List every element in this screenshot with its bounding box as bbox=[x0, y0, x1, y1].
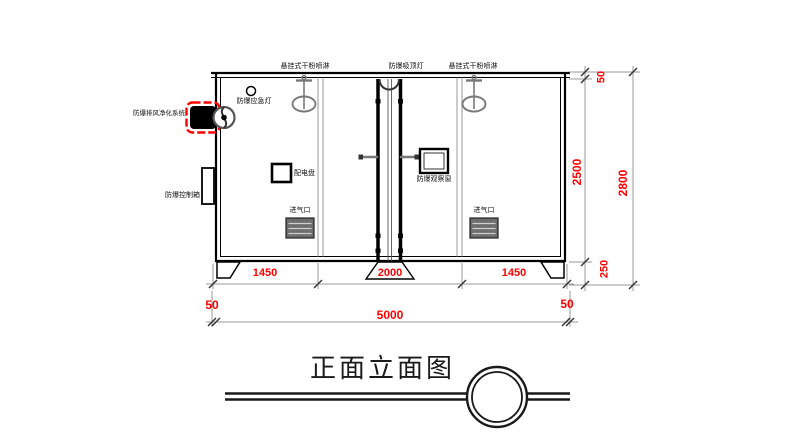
dim-width-left: 1450 bbox=[235, 268, 295, 279]
observation-window-label: 防爆观察窗 bbox=[389, 176, 479, 183]
air-inlet-left-vent bbox=[286, 218, 314, 238]
roof bbox=[211, 73, 570, 78]
exhaust-fan-unit bbox=[187, 103, 235, 133]
fan-body bbox=[190, 106, 216, 129]
emergency-light-label: 防爆应急灯 bbox=[209, 98, 299, 105]
door-handle-left bbox=[359, 155, 378, 160]
dim-height-base: 250 bbox=[600, 260, 611, 278]
dim-width-right: 1450 bbox=[484, 268, 544, 279]
dim-height-body: 2500 bbox=[571, 159, 583, 186]
dim-offset-right: 50 bbox=[537, 298, 597, 310]
emergency-light-symbol bbox=[247, 87, 256, 96]
drawing-title: 正面立面图 bbox=[310, 355, 455, 384]
observation-window-box bbox=[420, 149, 448, 173]
air-inlet-right-vent bbox=[470, 218, 498, 238]
exhaust-system-label: 防爆排风净化系统 bbox=[95, 111, 185, 118]
door-closer-arc bbox=[380, 79, 400, 90]
sprinkler-right-label: 悬挂式干粉喷淋 bbox=[428, 63, 518, 70]
dim-width-middle: 2000 bbox=[360, 268, 420, 279]
sprinkler-left-label: 悬挂式干粉喷淋 bbox=[260, 63, 350, 70]
air-inlet-left-label: 进气口 bbox=[255, 207, 345, 214]
distribution-panel-box bbox=[272, 164, 291, 182]
door-handle-right bbox=[401, 155, 419, 160]
sprinkler-left-symbol bbox=[293, 76, 316, 112]
title-circle bbox=[467, 367, 527, 427]
distribution-panel-label: 配电盘 bbox=[294, 170, 334, 177]
dim-width-total: 5000 bbox=[360, 309, 420, 321]
elevation-drawing: 悬挂式干粉喷淋 防爆吸顶灯 悬挂式干粉喷淋 防爆应急灯 防爆排风净化系统 防爆控… bbox=[0, 0, 800, 445]
control-box-symbol bbox=[202, 168, 214, 204]
air-inlet-right-label: 进气口 bbox=[439, 207, 529, 214]
control-box-label: 防爆控制箱 bbox=[110, 192, 200, 199]
dim-offset-left: 50 bbox=[182, 299, 242, 311]
dim-height-roof: 50 bbox=[597, 71, 608, 83]
dim-height-total: 2800 bbox=[617, 170, 629, 197]
sprinkler-right-symbol bbox=[463, 76, 486, 112]
